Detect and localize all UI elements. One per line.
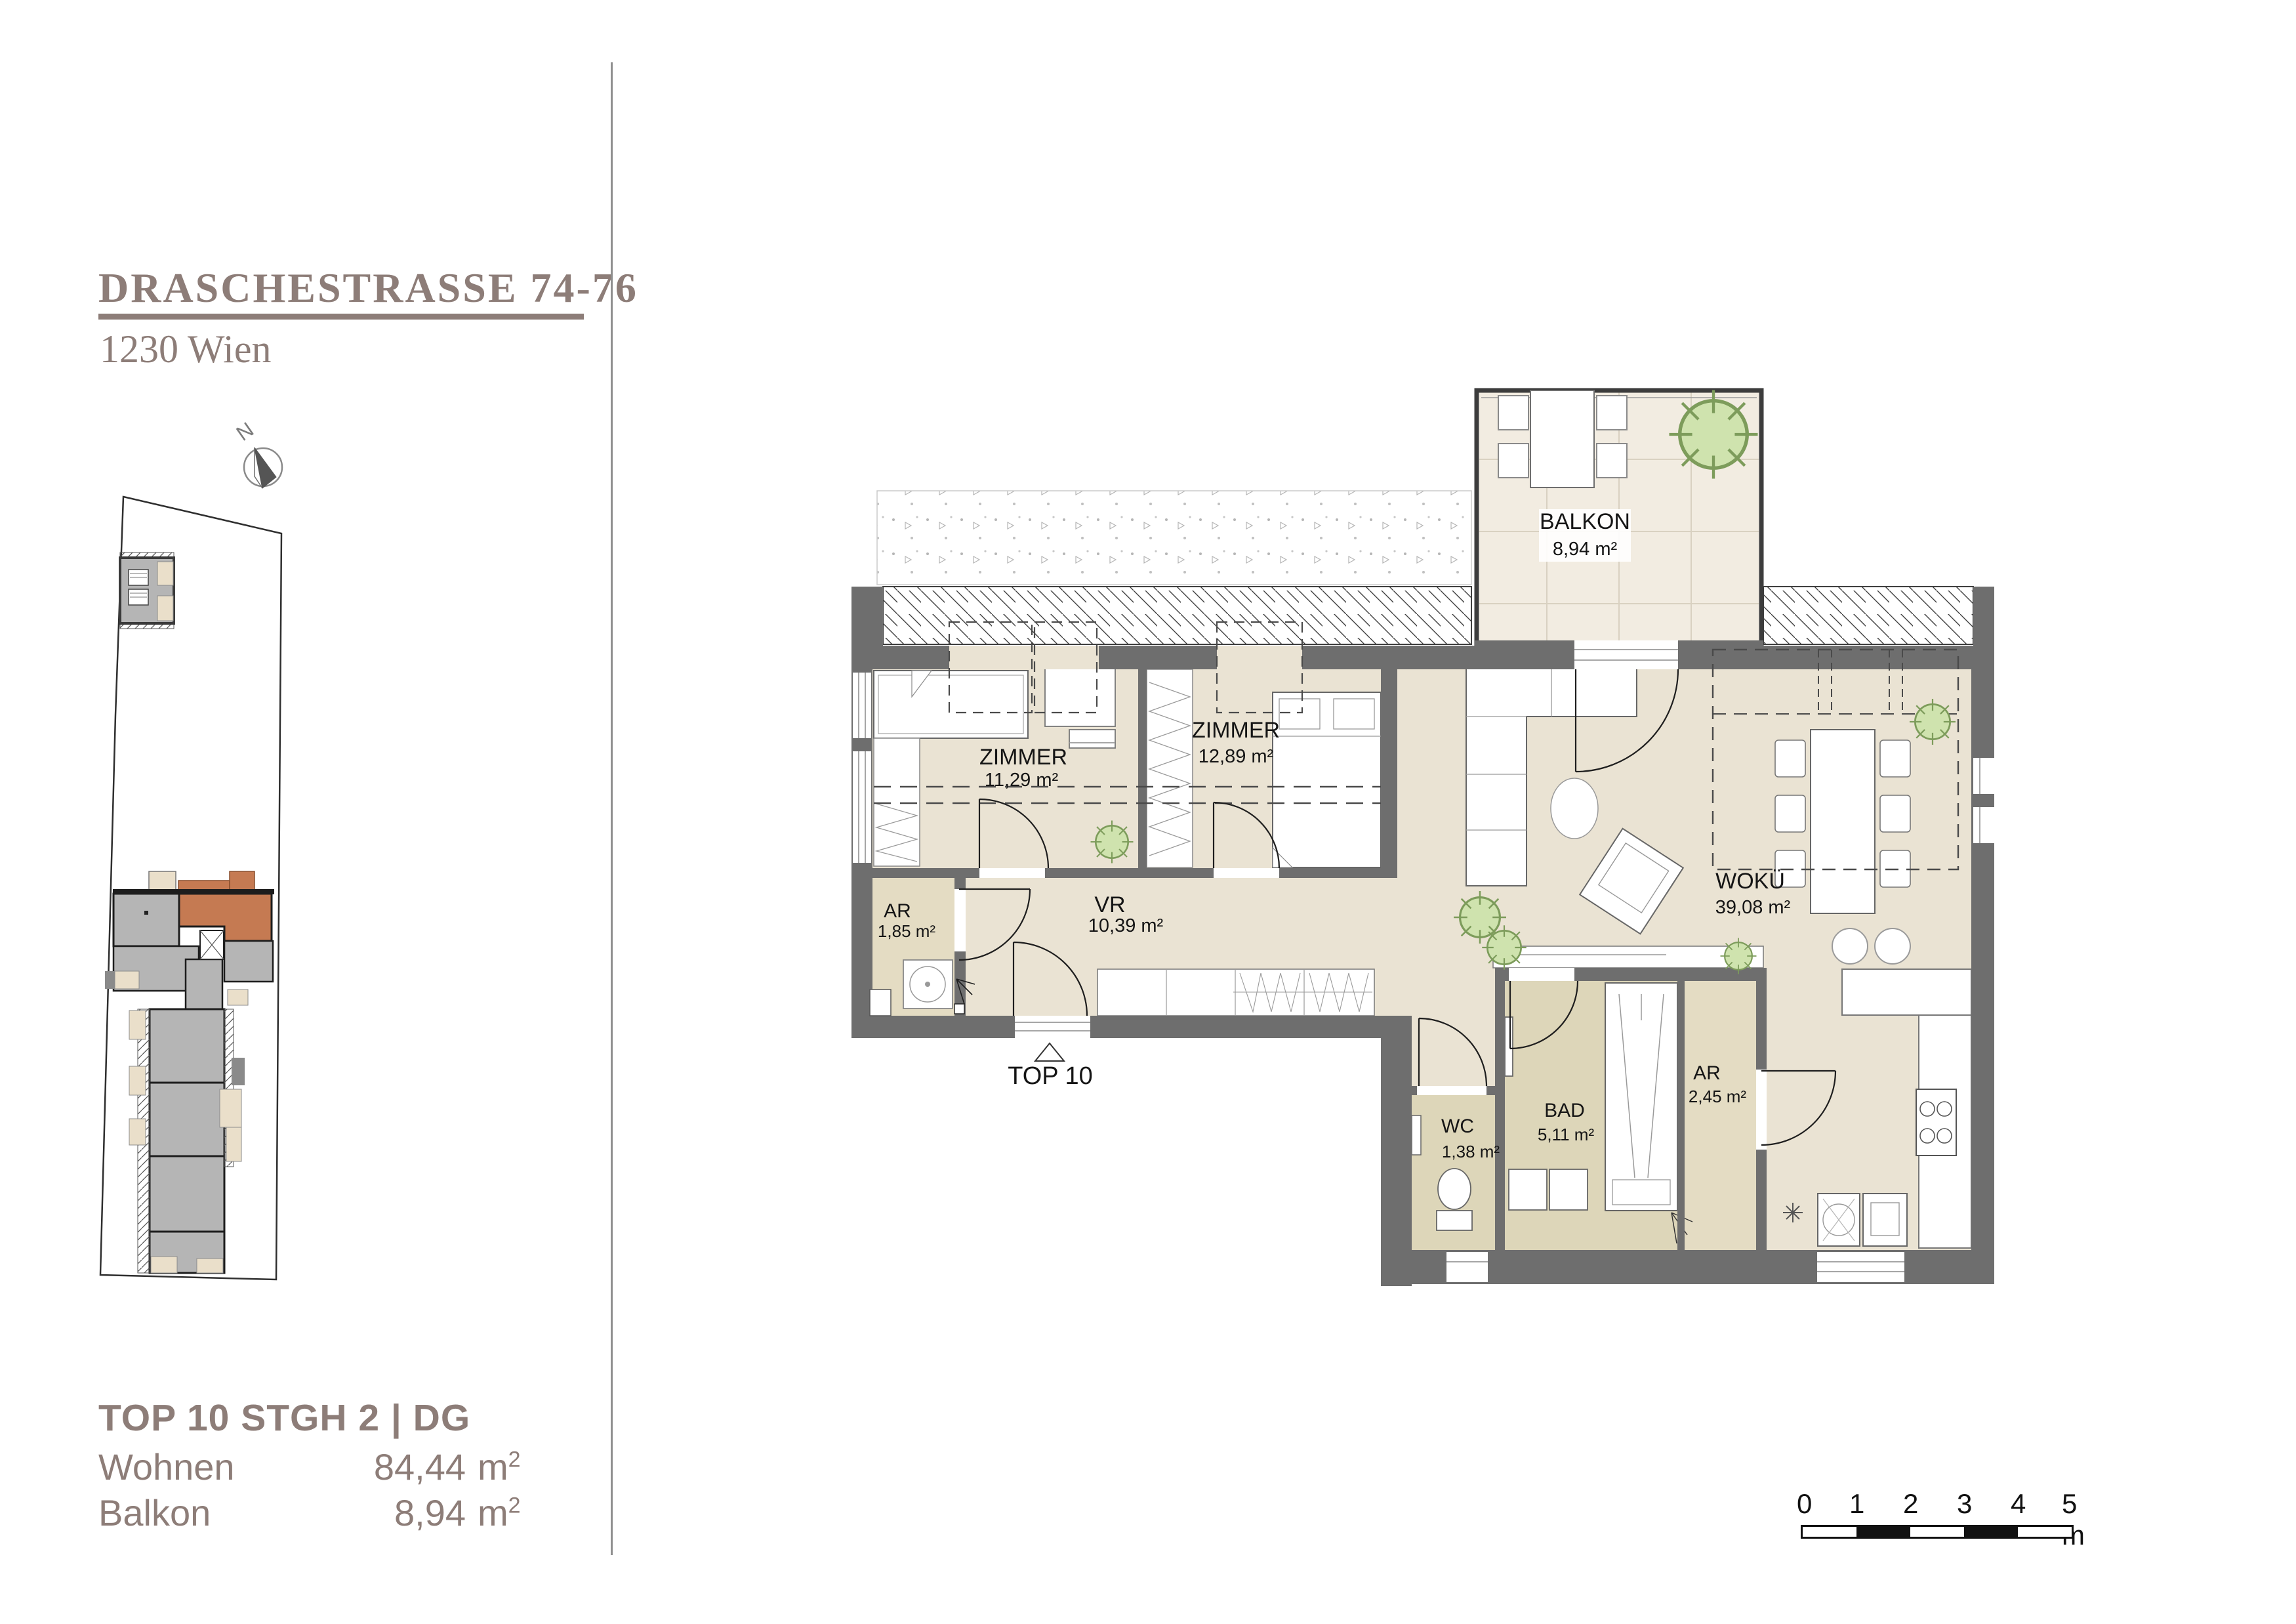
wc-sink: [1412, 1115, 1421, 1155]
room-label-balkon: BALKON: [1540, 509, 1630, 534]
panel-divider: [611, 62, 613, 1555]
scale-bar-segments: [1801, 1525, 2074, 1539]
room-label-zimmer2: ZIMMER: [1192, 718, 1280, 743]
stove-icon: [1916, 1089, 1956, 1156]
project-subtitle: 1230 Wien: [100, 327, 271, 372]
scale-tick: 1: [1849, 1488, 1864, 1520]
room-label-woku: WOKÜ: [1715, 869, 1785, 894]
plant-icon: [1721, 938, 1757, 974]
sideboard: [1493, 946, 1763, 968]
site-building-top: [120, 552, 174, 629]
entrance-label: TOP 10: [1008, 1062, 1093, 1090]
kitchen-sink-icon: [1863, 1194, 1907, 1246]
legend-value: 84,44: [315, 1449, 466, 1486]
bar-stool: [1832, 928, 1868, 964]
room-area-balkon: 8,94 m²: [1553, 539, 1618, 560]
room-area-zimmer1: 11,29 m²: [985, 770, 1059, 791]
scale-tick: 0: [1797, 1488, 1812, 1520]
balcony-tree-icon: [1670, 390, 1758, 479]
project-title: DRASCHESTRASSE 74-76: [98, 264, 638, 312]
room-label-ar1: AR: [884, 900, 911, 922]
room-label-wc: WC: [1441, 1115, 1474, 1137]
room-area-woku: 39,08 m²: [1715, 897, 1791, 918]
roof-hatch-band: [883, 587, 1973, 644]
unit-legend: TOP 10 STGH 2 | DG Wohnen 84,44 m2 Balko…: [98, 1396, 544, 1531]
room-area-zimmer2: 12,89 m²: [1199, 746, 1274, 767]
room-area-wc: 1,38 m²: [1442, 1142, 1500, 1161]
wardrobe-vr: [1097, 969, 1374, 1016]
plant-icon: [1091, 821, 1134, 864]
room-area-ar2: 2,45 m²: [1689, 1087, 1746, 1106]
legend-row-wohnen: Wohnen 84,44 m2: [98, 1449, 544, 1486]
dining-table-chairs: [1775, 730, 1910, 913]
entrance-triangle-icon: [1035, 1043, 1064, 1061]
room-label-vr: VR: [1094, 892, 1125, 917]
floor-plan: BALKON 8,94 m²: [840, 354, 2034, 1470]
legend-value: 8,94: [315, 1495, 466, 1531]
bar-stool: [1875, 928, 1910, 964]
scale-tick: 3: [1957, 1488, 1972, 1520]
bed-zimmer2: [1273, 692, 1381, 867]
site-plan: [91, 479, 290, 1293]
room-area-ar1: 1,85 m²: [878, 921, 935, 941]
room-label-bad: BAD: [1544, 1100, 1585, 1121]
balcony: BALKON 8,94 m²: [1477, 390, 1761, 646]
plant-icon: [1910, 699, 1956, 745]
unit-id: TOP 10 STGH 2 | DG: [98, 1396, 544, 1440]
room-label-ar2: AR: [1693, 1062, 1721, 1084]
dishwasher-icon: [1818, 1194, 1860, 1246]
legend-label: Balkon: [98, 1495, 315, 1531]
washing-machine-icon: [903, 960, 953, 1009]
site-highlight-bump: [178, 881, 230, 890]
plant-icon: [1482, 925, 1527, 970]
title-underline: [98, 314, 584, 320]
scale-bar: 0 1 2 3 4 5 m: [1801, 1488, 2083, 1547]
legend-row-balkon: Balkon 8,94 m2: [98, 1495, 544, 1531]
scale-tick: 2: [1903, 1488, 1918, 1520]
toilet-icon: [1437, 1169, 1472, 1230]
room-label-zimmer1: ZIMMER: [979, 745, 1067, 770]
rug: [1551, 778, 1598, 839]
scale-tick-last: 5 m: [2062, 1488, 2085, 1551]
wardrobe-zimmer2: [1147, 669, 1193, 867]
terrace-gravel-area: [877, 491, 1471, 585]
floor-ar2: [1685, 981, 1756, 1250]
scale-tick: 4: [2011, 1488, 2026, 1520]
wardrobe-zimmer1: [874, 738, 920, 866]
bed-zimmer1: [874, 671, 1028, 738]
legend-label: Wohnen: [98, 1449, 315, 1486]
north-label: N: [232, 417, 258, 446]
room-area-bad: 5,11 m²: [1538, 1125, 1595, 1144]
room-area-vr: 10,39 m²: [1088, 915, 1164, 936]
